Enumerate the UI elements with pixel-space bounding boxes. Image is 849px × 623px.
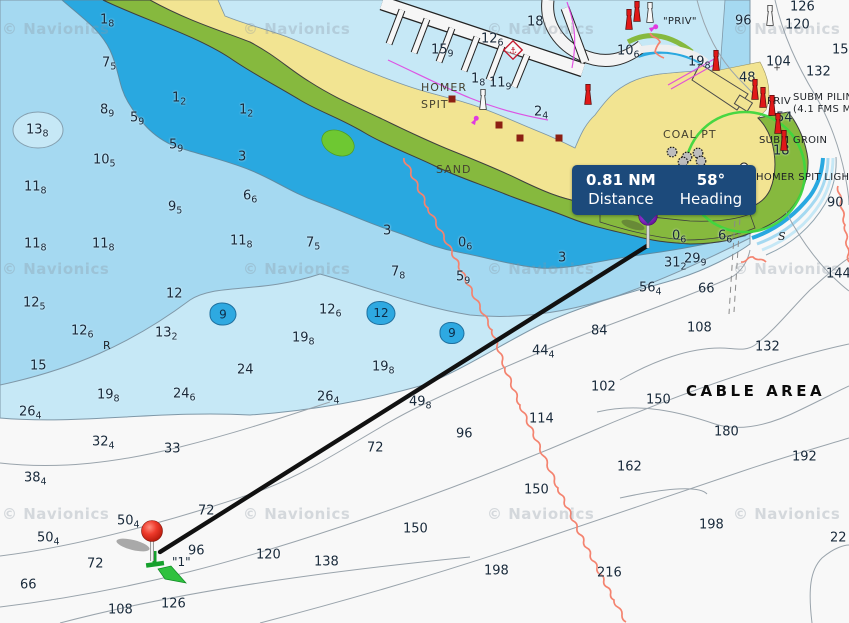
depth-sounding: 3 [558, 252, 566, 265]
navionics-watermark: © Navionics [243, 505, 350, 523]
depth-sounding: 75 [102, 56, 116, 72]
depth-sounding: 198 [699, 519, 724, 532]
map-label: R [103, 340, 111, 351]
depth-sounding: 198 [688, 55, 711, 71]
depth-sounding: 324 [92, 435, 115, 451]
depth-sounding: 18 [471, 72, 485, 88]
tooltip-pointer [639, 214, 657, 224]
depth-sounding: 192 [792, 451, 817, 464]
depth-sounding: 24 [534, 105, 548, 121]
depth-sounding: 66 [698, 283, 715, 296]
depth-sounding: 144 [826, 268, 849, 281]
depth-sounding: 299 [684, 252, 707, 268]
depth-sounding: 59 [169, 138, 183, 154]
depth-sounding: 118 [24, 180, 47, 196]
distance-label: Distance [586, 190, 656, 208]
depth-blob: 9 [210, 303, 237, 326]
map-label: SUBM GROIN [759, 136, 827, 146]
light-flare-icon [469, 109, 485, 125]
depth-sounding: 126 [481, 32, 504, 48]
depth-sounding: 198 [292, 331, 315, 347]
depth-sounding: 150 [403, 523, 428, 536]
light-flare-icon [649, 18, 665, 34]
map-label: SPIT [421, 99, 449, 110]
map-label: S [778, 231, 786, 242]
depth-sounding: 384 [24, 471, 47, 487]
depth-sounding: 3 [238, 151, 246, 164]
depth-sounding: 72 [87, 558, 104, 571]
depth-sounding: 118 [24, 237, 47, 253]
depth-sounding: 120 [785, 19, 810, 32]
navionics-watermark: © Navionics [2, 260, 109, 278]
red-beacon-icon [778, 128, 791, 151]
depth-sounding: 126 [161, 598, 186, 611]
depth-sounding: 264 [19, 405, 42, 421]
chart-canvas[interactable]: © Navionics© Navionics© Navionics© Navio… [0, 0, 849, 623]
depth-sounding: 102 [591, 381, 616, 394]
depth-sounding: 106 [617, 44, 640, 60]
depth-blob: 12 [367, 301, 396, 325]
depth-sounding: 162 [617, 461, 642, 474]
depth-sounding: 33 [164, 443, 181, 456]
red-beacon-icon [710, 48, 723, 71]
depth-sounding: 132 [755, 341, 780, 354]
heading-label: Heading [680, 190, 742, 208]
navionics-watermark: © Navionics [487, 260, 594, 278]
navionics-watermark: © Navionics [2, 505, 109, 523]
red-beacon-icon [582, 82, 595, 105]
depth-sounding: 96 [456, 428, 473, 441]
depth-sounding: 75 [306, 236, 320, 252]
depth-sounding: 89 [100, 103, 114, 119]
depth-sounding: 108 [108, 604, 133, 617]
depth-sounding: 126 [319, 303, 342, 319]
white-beacon-icon [477, 87, 490, 110]
depth-sounding: 90 [827, 197, 844, 210]
depth-sounding: 125 [23, 296, 46, 312]
map-label: CABLE AREA [686, 384, 825, 399]
depth-sounding: 96 [735, 15, 752, 28]
depth-sounding: 198 [372, 360, 395, 376]
depth-sounding: 132 [155, 326, 178, 342]
building-icon [449, 96, 456, 103]
depth-sounding: 18 [527, 16, 544, 29]
building-icon [496, 122, 503, 129]
building-icon [517, 135, 524, 142]
navionics-watermark: © Navionics [733, 260, 840, 278]
depth-sounding: 06 [672, 229, 686, 245]
heading-readout: 58° Heading [680, 171, 742, 208]
depth-sounding: 132 [806, 66, 831, 79]
depth-sounding: 22 [830, 532, 847, 545]
depth-sounding: 18 [100, 13, 114, 29]
depth-sounding: 12 [172, 91, 186, 107]
depth-sounding: 72 [367, 442, 384, 455]
depth-sounding: 119 [489, 76, 512, 92]
map-label: "PRIV" [663, 17, 697, 27]
depth-sounding: 06 [458, 236, 472, 252]
navionics-watermark: © Navionics [243, 260, 350, 278]
depth-sounding: 66 [243, 189, 257, 205]
depth-sounding: 150 [646, 394, 671, 407]
measure-tooltip: 0.81 NM Distance 58° Heading [572, 165, 756, 215]
navionics-watermark: © Navionics [2, 20, 109, 38]
depth-sounding: 216 [597, 567, 622, 580]
depth-sounding: 264 [317, 390, 340, 406]
obstruction-cross-icon: + [773, 65, 781, 74]
depth-sounding: 118 [92, 237, 115, 253]
map-label: COAL PT [663, 129, 717, 140]
depth-sounding: 504 [117, 514, 140, 530]
depth-sounding: 198 [97, 388, 120, 404]
white-beacon-icon [764, 3, 777, 26]
map-label: "1" [172, 556, 191, 568]
navionics-watermark: © Navionics [243, 20, 350, 38]
depth-sounding: 138 [314, 556, 339, 569]
depth-sounding: 150 [832, 44, 849, 57]
distance-value: 0.81 NM [586, 171, 656, 190]
depth-sounding: 66 [718, 229, 732, 245]
map-label: SAND [436, 164, 471, 175]
depth-sounding: 198 [484, 565, 509, 578]
depth-sounding: 114 [529, 413, 554, 426]
depth-sounding: 24 [237, 364, 254, 377]
depth-blob: 9 [440, 322, 465, 344]
red-beacon-icon [631, 0, 644, 22]
depth-sounding: 120 [256, 549, 281, 562]
map-label: HOMER [421, 82, 467, 93]
depth-sounding: 3 [383, 225, 391, 238]
depth-sounding: 95 [168, 200, 182, 216]
depth-sounding: 150 [524, 484, 549, 497]
map-label: SUBM PILIN [793, 93, 849, 103]
navionics-watermark: © Navionics [487, 505, 594, 523]
depth-sounding: 78 [391, 265, 405, 281]
building-icon [556, 135, 563, 142]
depth-sounding: 126 [790, 1, 815, 14]
depth-sounding: 12 [239, 103, 253, 119]
depth-sounding: 15 [30, 360, 47, 373]
depth-sounding: 138 [26, 123, 49, 139]
anchorage-icon: ⚓ [502, 39, 524, 61]
depth-sounding: 504 [37, 531, 60, 547]
depth-sounding: 105 [93, 153, 116, 169]
depth-sounding: 564 [639, 281, 662, 297]
depth-sounding: 59 [456, 270, 470, 286]
svg-text:⚓: ⚓ [509, 47, 517, 57]
depth-sounding: 126 [71, 324, 94, 340]
depth-sounding: 180 [714, 426, 739, 439]
heading-value: 58° [680, 171, 742, 190]
depth-sounding: 12 [166, 288, 183, 301]
depth-sounding: 108 [687, 322, 712, 335]
depth-sounding: 118 [230, 234, 253, 250]
chart-annotations: © Navionics© Navionics© Navionics© Navio… [0, 0, 849, 623]
depth-sounding: 84 [591, 325, 608, 338]
map-label: (4.1 FMS M [793, 105, 849, 115]
depth-sounding: 498 [409, 395, 432, 411]
navionics-watermark: © Navionics [733, 505, 840, 523]
depth-sounding: 159 [431, 43, 454, 59]
depth-sounding: 72 [198, 505, 215, 518]
depth-sounding: 59 [130, 111, 144, 127]
distance-readout: 0.81 NM Distance [586, 171, 656, 208]
map-label: HOMER SPIT LIGHT [756, 173, 849, 183]
depth-sounding: 66 [20, 579, 37, 592]
depth-sounding: 246 [173, 387, 196, 403]
depth-sounding: 444 [532, 344, 555, 360]
